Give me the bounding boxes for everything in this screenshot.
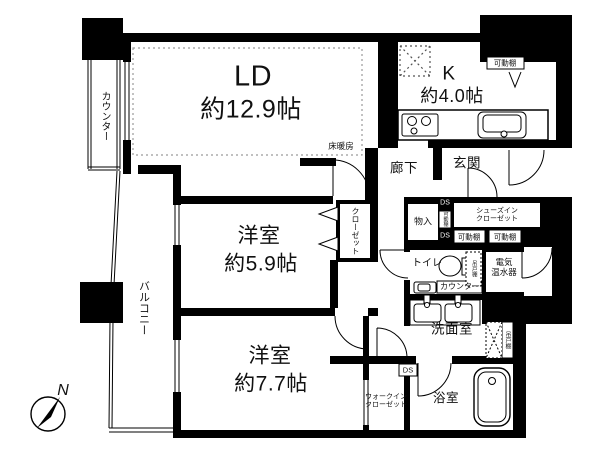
room-label-shoes-closet-1: シューズイン (476, 208, 518, 215)
room-label-washroom: 洗面室 (431, 322, 473, 336)
label-movable-shelf-2: 可動棚 (494, 233, 517, 241)
label-duct-space-2: DS (440, 233, 450, 240)
label-north: N (57, 383, 69, 399)
door-shoes-closet (468, 168, 497, 197)
label-toilet-counter: カウンター (440, 283, 480, 291)
room-label-toilet: トイレ (412, 259, 442, 269)
bathroom-fixtures (474, 368, 510, 426)
closet-folding-doors (319, 207, 338, 251)
door-washroom (377, 328, 407, 358)
door-water-heater (522, 248, 552, 278)
label-hanging-cupboard-toilet: 吊戸棚 (470, 261, 476, 278)
door-entrance (509, 150, 544, 185)
room-label-wic-1: ウォークイン (365, 394, 407, 401)
toilet-bowl (439, 256, 461, 276)
room-label-shoes-closet-2: クローゼット (476, 216, 518, 223)
label-floor-heating: 床暖房 (328, 142, 354, 151)
stove (402, 114, 438, 136)
room-label-wic-2: クローゼット (365, 402, 407, 409)
pillar-balcony (80, 282, 123, 323)
label-movable-shelf-kitchen: 可動棚 (494, 59, 517, 67)
shelf-bracket-icon (509, 72, 521, 87)
label-movable-shelf-1: 可動棚 (458, 233, 481, 241)
compass (31, 397, 65, 431)
label-storage: 物入 (414, 218, 432, 227)
refrigerator-space (400, 46, 430, 76)
kitchen-fixtures (398, 72, 548, 140)
room-label-corridor: 廊下 (390, 161, 418, 175)
room-label-ld: LD (234, 63, 272, 92)
room-label-west59: 洋室 (238, 226, 281, 247)
label-balcony: バルコニー (138, 281, 149, 336)
room-label-kitchen: K (442, 65, 455, 84)
room-area-west59: 約5.9帖 (224, 254, 298, 275)
room-label-entrance: 玄関 (453, 156, 481, 170)
label-duct-space-3: DS (403, 366, 413, 374)
label-movable-shelf-strip: 可動棚 (443, 212, 448, 227)
room-label-bathroom: 浴室 (433, 392, 459, 405)
room-area-west77: 約7.7帖 (234, 374, 308, 395)
room-label-west77: 洋室 (249, 346, 292, 367)
toilet-door-gap (402, 252, 410, 280)
window-west77 (175, 340, 179, 392)
room-area-ld: 約12.9帖 (200, 98, 302, 123)
label-closet: クローゼット (351, 207, 359, 255)
room-label-water-heater-1: 電気 (495, 258, 512, 267)
label-hanging-cupboard-washroom: 吊戸棚 (504, 331, 510, 349)
floor-plan: LD 約12.9帖 K 約4.0帖 洋室 約5.9帖 洋室 約7.7帖 廊下 玄… (0, 0, 600, 462)
window-ld (125, 62, 129, 140)
label-duct-space-1: DS (440, 200, 450, 207)
door-west59 (333, 160, 369, 196)
label-balcony-counter: カウンター (99, 91, 109, 141)
room-area-kitchen: 約4.0帖 (420, 87, 484, 105)
room-label-water-heater-2: 温水器 (491, 268, 517, 277)
window-west59 (175, 205, 179, 245)
pillar-top-left (82, 18, 123, 60)
